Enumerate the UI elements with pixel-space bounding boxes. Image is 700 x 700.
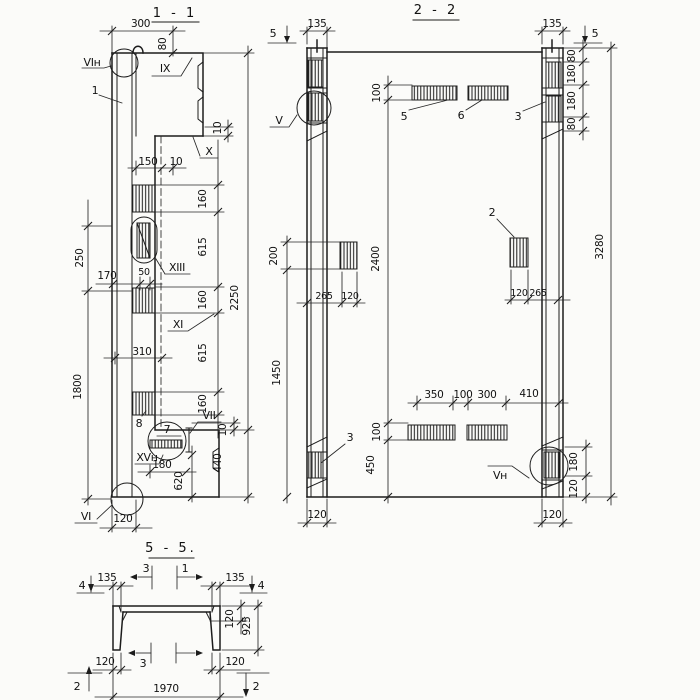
dim-160a: 160	[197, 189, 209, 208]
cut-label-2-left: 2	[74, 680, 81, 693]
texts-1-1: 300 80 VIн 1 IX 150 10 X 10 160 615 160 …	[72, 18, 241, 525]
label-1: 1	[92, 84, 99, 97]
dim-80a: 80	[566, 50, 578, 63]
dim-135-left: 135	[97, 572, 116, 584]
dim-80b: 80	[566, 118, 578, 131]
label-8: 8	[136, 417, 143, 430]
dim-135-right: 135	[542, 18, 561, 30]
cut-label-2-right: 2	[253, 680, 260, 693]
dim-120-col-left: 120	[307, 509, 326, 521]
dim-300: 300	[477, 389, 496, 401]
cut-label-4-left: 4	[79, 579, 86, 592]
detail-circle-VI	[111, 483, 143, 515]
texts-5-5: 4 4 135 135 3 1 120 925 3 120 120 2 2 19…	[74, 562, 265, 695]
dim-440: 440	[212, 453, 224, 472]
cut-arrow-5-left	[284, 36, 290, 43]
dim-100-mid: 100	[453, 389, 472, 401]
dim-615b: 615	[197, 343, 209, 362]
dim-250: 250	[74, 248, 86, 267]
label-2: 2	[489, 206, 496, 219]
dim-150: 150	[138, 156, 157, 168]
dim-120-col-right: 120	[542, 509, 561, 521]
dim-1970: 1970	[153, 683, 179, 695]
dim-10b: 10	[212, 122, 224, 135]
dim-1450: 1450	[271, 360, 283, 386]
dim-2400: 2400	[370, 246, 382, 272]
dim-120: 120	[113, 513, 132, 525]
dim-200: 200	[268, 246, 280, 265]
embed-plates-2-2	[307, 60, 561, 478]
dim-160b: 160	[197, 290, 209, 309]
label-IX: IX	[160, 62, 171, 75]
dim-120-bottom-left: 120	[95, 656, 114, 668]
label-V: V	[275, 114, 283, 127]
label-6: 6	[458, 109, 465, 122]
dim-135-right: 135	[225, 572, 244, 584]
dim-615a: 615	[197, 237, 209, 256]
dim-120-left: 120	[341, 291, 358, 302]
dim-50: 50	[138, 267, 150, 278]
cut-label-5-left: 5	[270, 27, 277, 40]
dim-620: 620	[173, 471, 185, 490]
drawing-sheet: 1 - 1	[0, 0, 700, 700]
cut-label-1-top: 1	[182, 562, 189, 575]
cut-label-3-top: 3	[143, 562, 150, 575]
dim-ticks-5-5	[109, 582, 262, 700]
dim-10c: 10	[217, 424, 229, 437]
channel-details	[119, 606, 214, 620]
dim-2250: 2250	[229, 285, 241, 311]
dim-80: 80	[157, 38, 169, 51]
label-3-right: 3	[515, 110, 522, 123]
section-5-5: 5 - 5.	[68, 541, 269, 700]
section-1-1-title: 1 - 1	[153, 6, 198, 21]
dim-265-left: 265	[315, 291, 332, 302]
dim-180a: 180	[566, 64, 578, 83]
dim-180b: 180	[566, 91, 578, 110]
dim-120-bottom-right: 120	[225, 656, 244, 668]
dim-170: 170	[97, 270, 116, 282]
section-2-2-title: 2 - 2	[414, 3, 459, 18]
label-X: X	[205, 145, 213, 158]
dim-3280: 3280	[594, 234, 606, 260]
dim-120-flange: 120	[224, 609, 236, 628]
label-VI: VI	[81, 510, 91, 523]
engineering-drawing: 1 - 1	[0, 0, 700, 700]
label-Vn: Vн	[493, 469, 507, 482]
cut-label-4-right: 4	[258, 579, 265, 592]
label-5: 5	[401, 110, 408, 123]
dim-135-left: 135	[307, 18, 326, 30]
section-1-1: 1 - 1	[72, 6, 254, 532]
cut-arrows-5-5	[86, 574, 255, 697]
dim-10a: 10	[170, 156, 183, 168]
dim-300: 300	[131, 18, 150, 30]
label-VII: VII	[202, 409, 215, 422]
dim-265-right: 265	[529, 288, 546, 299]
label-3-bottom: 3	[347, 431, 354, 444]
dim-180-side: 180	[568, 452, 580, 471]
dim-180: 180	[152, 459, 171, 471]
dim-925: 925	[241, 616, 253, 635]
cut-label-3-bottom: 3	[140, 657, 147, 670]
dim-lines-5-5	[68, 566, 269, 700]
channel-outline	[113, 606, 220, 650]
label-XIII: XIII	[169, 261, 185, 274]
dim-410: 410	[519, 388, 538, 400]
dim-1800: 1800	[72, 374, 84, 400]
dim-120-side: 120	[568, 479, 580, 498]
cut-label-5-right: 5	[592, 27, 599, 40]
dim-450: 450	[365, 455, 377, 474]
label-XI: XI	[173, 318, 183, 331]
section-5-5-title: 5 - 5.	[145, 541, 197, 556]
dim-100-top: 100	[371, 83, 383, 102]
dim-350: 350	[424, 389, 443, 401]
dim-100-bottom: 100	[371, 422, 383, 441]
dim-310: 310	[132, 346, 151, 358]
label-7: 7	[164, 423, 171, 436]
label-VIn: VIн	[83, 56, 100, 69]
section-2-2: 2 - 2	[268, 3, 617, 527]
dim-120-right: 120	[510, 288, 527, 299]
